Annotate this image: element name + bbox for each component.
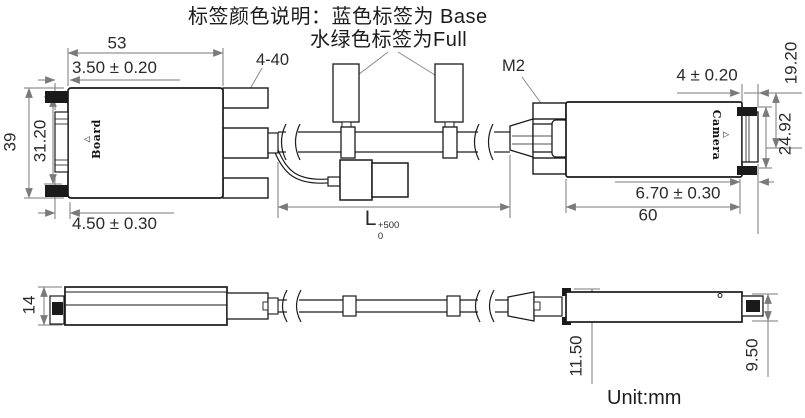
camera-strain-relief <box>510 119 533 157</box>
dim-camera-shell-height: 24.92 <box>777 113 796 156</box>
cable-length-lower-tolerance: 0 <box>378 232 399 243</box>
dim-camera-shell-thickness: 9.50 <box>744 338 763 371</box>
dim-camera-shell-offset: 6.70 ± 0.30 <box>636 185 721 204</box>
leader-lines <box>246 52 546 110</box>
side-board-body <box>65 287 227 325</box>
dim-board-body-thickness: 14 <box>21 296 40 315</box>
label-color-note-line1: 标签颜色说明：蓝色标签为 Base <box>188 6 488 28</box>
camera-thumbscrew-bottom <box>533 158 566 174</box>
board-dsub-shell <box>55 112 68 172</box>
dim-board-shell-height: 31.20 <box>32 120 51 163</box>
label-color-note-line2: 水绿色标签为Full <box>310 29 467 51</box>
side-camera-strain-relief <box>508 292 534 321</box>
camera-thumbscrew-top <box>533 103 566 119</box>
camera-connector-label: △ Camera <box>710 110 730 160</box>
cable-length-symbol: L <box>365 207 377 230</box>
dim-cable-length: L+5000 <box>365 207 400 243</box>
camera-orientation-mark-icon: △ <box>722 110 730 160</box>
dim-camera-clamp-height: 11.50 <box>568 335 587 376</box>
board-label-text: Board <box>91 119 103 159</box>
board-screw-nut-bottom <box>45 185 68 197</box>
label-tag-2 <box>435 64 463 158</box>
label-tag-1 <box>333 64 359 158</box>
dim-board-screw-offset: 4.50 ± 0.30 <box>72 215 157 234</box>
side-camera-hole <box>718 294 722 298</box>
branch-connector <box>328 160 408 200</box>
side-board-boot <box>227 293 268 319</box>
board-connector-label: △ Board <box>83 119 103 159</box>
side-label-band-1 <box>343 296 356 316</box>
camera-screw-nut-bottom <box>737 166 757 175</box>
dim-camera-screw-span: 19.20 <box>783 42 802 85</box>
dim-board-body-width: 53 <box>108 35 127 54</box>
cable-assembly-drawing: 标签颜色说明：蓝色标签为 Base 水绿色标签为Full 4-40 M2 53 … <box>0 0 805 418</box>
board-jackscrew-top <box>223 88 268 108</box>
side-view <box>50 287 763 325</box>
side-label-band-2 <box>447 296 460 316</box>
dim-camera-shell-step: 4 ± 0.20 <box>676 67 737 86</box>
dim-board-shell-offset: 3.50 ± 0.20 <box>72 59 157 78</box>
side-camera-body <box>566 292 742 322</box>
cable-top-view <box>278 124 510 160</box>
dim-camera-body-width: 60 <box>639 207 658 226</box>
board-screw-nut-top <box>45 91 68 103</box>
dim-board-body-height: 39 <box>2 133 21 152</box>
screw-spec-4-40: 4-40 <box>256 51 289 69</box>
camera-sdr-shell <box>742 112 758 162</box>
screw-spec-m2: M2 <box>502 57 525 75</box>
board-jackscrew-bottom <box>223 178 268 198</box>
camera-label-text: Camera <box>710 110 722 160</box>
unit-label: Unit:mm <box>607 387 681 409</box>
side-cable <box>278 290 508 322</box>
board-connector-top-view <box>45 88 278 198</box>
camera-screw-nut-top <box>737 107 757 116</box>
board-cable-boot <box>223 128 268 158</box>
